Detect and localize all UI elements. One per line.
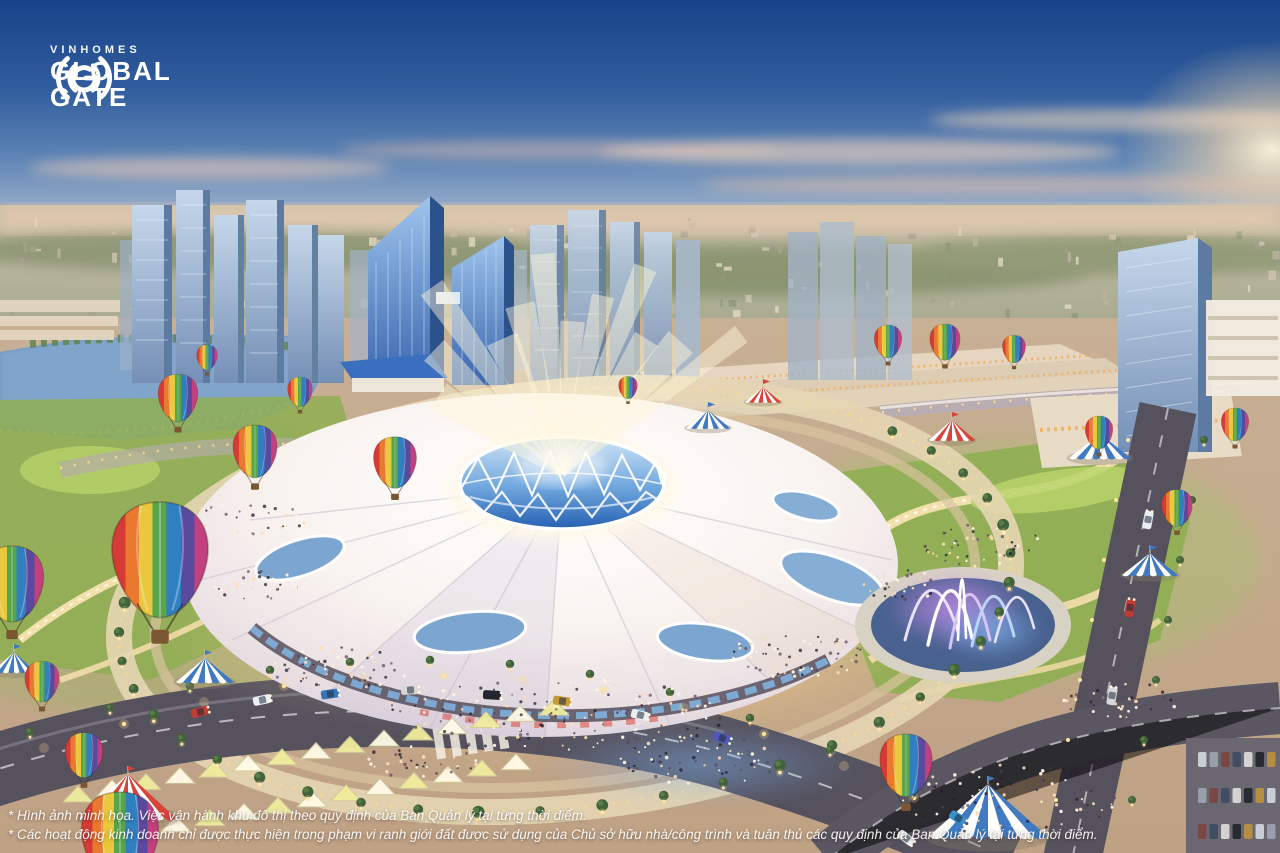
- person: [665, 756, 669, 760]
- person: [1036, 789, 1038, 791]
- tree-highlight: [950, 665, 956, 671]
- far-right-building: [1206, 300, 1280, 396]
- person: [953, 542, 956, 545]
- person: [260, 570, 263, 573]
- person: [400, 756, 403, 759]
- person: [718, 769, 720, 771]
- distant-building: [1068, 252, 1071, 262]
- tree-uplight: [216, 764, 219, 767]
- person: [998, 554, 1001, 557]
- tree-highlight: [828, 741, 833, 746]
- person: [750, 656, 752, 658]
- distant-building: [1076, 257, 1079, 265]
- person: [869, 590, 871, 592]
- person: [1003, 554, 1005, 556]
- parked-car: [1198, 788, 1207, 803]
- person: [835, 642, 838, 645]
- person: [944, 560, 946, 562]
- person: [1079, 788, 1082, 791]
- person: [1036, 537, 1039, 540]
- car: [483, 690, 503, 700]
- distant-building: [973, 238, 978, 246]
- person: [909, 573, 912, 576]
- person: [303, 522, 306, 525]
- person: [542, 740, 545, 743]
- person: [686, 728, 688, 730]
- person: [966, 555, 969, 558]
- person: [929, 592, 932, 595]
- parked-car: [1210, 788, 1219, 803]
- person: [1074, 698, 1077, 701]
- person: [991, 795, 993, 797]
- person: [520, 713, 523, 716]
- tree-highlight: [107, 705, 111, 709]
- person: [1003, 793, 1006, 796]
- person: [1070, 695, 1073, 698]
- person: [744, 780, 746, 782]
- distant-building: [1272, 251, 1279, 260]
- tree-uplight: [269, 674, 272, 677]
- person: [725, 771, 728, 774]
- person: [275, 534, 277, 536]
- person: [441, 749, 443, 751]
- logo-brand-text: VINHOMES: [50, 44, 172, 56]
- tree-highlight: [996, 608, 1000, 612]
- person: [923, 545, 927, 549]
- person: [279, 584, 281, 586]
- person: [753, 760, 756, 763]
- person: [539, 723, 542, 726]
- vinhomes-global-gate-logo: VINHOMES GLOBAL GATE: [50, 44, 172, 110]
- person: [626, 740, 630, 744]
- person: [927, 782, 931, 786]
- person: [410, 745, 412, 747]
- person: [453, 756, 455, 758]
- person: [1150, 708, 1152, 710]
- person: [627, 767, 630, 770]
- tree-highlight: [214, 756, 218, 760]
- person: [829, 651, 833, 655]
- person: [476, 699, 479, 702]
- person: [999, 764, 1002, 767]
- distant-building: [746, 295, 752, 303]
- person: [972, 530, 975, 533]
- person: [416, 764, 419, 767]
- distant-building: [369, 237, 377, 245]
- tree-highlight: [1177, 557, 1181, 561]
- person: [1090, 790, 1092, 792]
- person: [1093, 692, 1096, 695]
- person: [768, 770, 771, 773]
- person: [795, 655, 797, 657]
- tree-uplight: [429, 664, 432, 667]
- person: [565, 712, 567, 714]
- tree-highlight: [984, 494, 989, 499]
- person: [815, 649, 818, 652]
- person: [793, 675, 796, 678]
- person: [929, 579, 933, 583]
- person: [824, 656, 826, 658]
- parked-car: [1256, 788, 1265, 803]
- person: [205, 509, 207, 511]
- distant-building: [733, 310, 741, 317]
- person: [667, 773, 669, 775]
- person: [294, 585, 297, 588]
- person: [893, 592, 896, 595]
- person: [625, 712, 628, 715]
- distant-building: [57, 249, 61, 259]
- person: [647, 702, 650, 705]
- person: [422, 756, 425, 759]
- person: [1102, 697, 1105, 700]
- person: [663, 685, 667, 689]
- person: [1051, 782, 1054, 785]
- tree-uplight: [919, 701, 922, 704]
- person: [729, 750, 731, 752]
- person: [511, 677, 513, 679]
- person: [972, 527, 975, 530]
- aerial-render: [0, 0, 1280, 853]
- person: [450, 771, 453, 774]
- parked-car: [1210, 752, 1219, 767]
- person: [326, 673, 328, 675]
- person: [616, 711, 618, 713]
- person: [447, 747, 449, 749]
- person: [902, 799, 904, 801]
- person: [884, 584, 886, 586]
- person: [351, 648, 354, 651]
- person: [493, 689, 495, 691]
- person: [697, 750, 699, 752]
- person: [657, 760, 661, 764]
- person: [785, 635, 787, 637]
- tree-highlight: [150, 711, 155, 716]
- person: [1097, 711, 1099, 713]
- person: [205, 524, 207, 526]
- person: [704, 704, 707, 707]
- parked-car: [1221, 752, 1230, 767]
- person: [258, 575, 261, 578]
- person: [584, 717, 586, 719]
- person: [1034, 535, 1036, 537]
- person: [815, 669, 818, 672]
- person: [210, 506, 212, 508]
- person: [755, 651, 757, 653]
- person: [973, 537, 975, 539]
- person: [732, 657, 734, 659]
- person: [422, 775, 425, 778]
- distant-building: [20, 258, 24, 264]
- person: [1070, 708, 1072, 710]
- person: [988, 798, 990, 800]
- render-canvas: VINHOMES GLOBAL GATE * Hình ảnh minh họa…: [0, 0, 1280, 853]
- person: [364, 679, 366, 681]
- person: [443, 769, 445, 771]
- person: [671, 687, 674, 690]
- distant-building: [720, 299, 722, 307]
- parked-car: [1244, 752, 1253, 767]
- person: [320, 648, 322, 650]
- person: [679, 762, 681, 764]
- person: [608, 679, 610, 681]
- person: [1099, 680, 1102, 683]
- distant-building: [1248, 285, 1250, 292]
- person: [302, 678, 304, 680]
- person: [990, 537, 993, 540]
- person: [942, 543, 945, 546]
- distant-building: [24, 243, 28, 253]
- person: [243, 597, 245, 599]
- street-light: [1102, 558, 1106, 562]
- person: [469, 712, 472, 715]
- person: [250, 534, 253, 537]
- person: [443, 730, 446, 733]
- person: [1075, 798, 1078, 801]
- tree-uplight: [589, 678, 592, 681]
- tree-uplight: [722, 786, 725, 789]
- person: [479, 686, 482, 689]
- person: [1126, 716, 1128, 718]
- person: [768, 643, 771, 646]
- tree-uplight: [1007, 587, 1011, 591]
- person: [274, 507, 277, 510]
- person: [906, 574, 909, 577]
- person: [817, 636, 819, 638]
- person: [747, 750, 749, 752]
- person: [218, 588, 220, 590]
- tree-uplight: [877, 727, 881, 731]
- person: [235, 586, 238, 589]
- person: [765, 638, 768, 641]
- person: [1140, 706, 1143, 709]
- person: [568, 748, 570, 750]
- person: [1069, 773, 1072, 776]
- person: [653, 739, 655, 741]
- person: [365, 685, 368, 688]
- person: [575, 688, 578, 691]
- person: [280, 526, 283, 529]
- tree-uplight: [669, 696, 672, 699]
- person: [633, 765, 636, 768]
- person: [883, 574, 886, 577]
- person: [788, 655, 791, 658]
- person: [912, 587, 915, 590]
- person: [840, 665, 842, 667]
- person: [442, 708, 444, 710]
- person: [1032, 787, 1036, 791]
- person: [1075, 693, 1078, 696]
- tree-highlight: [1165, 617, 1169, 621]
- person: [1039, 772, 1042, 775]
- person: [290, 682, 292, 684]
- person: [298, 677, 301, 680]
- person: [634, 728, 637, 731]
- person: [1022, 766, 1025, 769]
- person: [1049, 767, 1051, 769]
- person: [778, 652, 781, 655]
- tree-highlight: [27, 729, 31, 733]
- person: [855, 641, 858, 644]
- person: [297, 654, 300, 657]
- tree-highlight: [1153, 677, 1157, 681]
- person: [973, 565, 976, 568]
- person: [304, 661, 307, 664]
- person: [235, 582, 238, 585]
- person: [659, 755, 661, 757]
- person: [493, 712, 496, 715]
- person: [466, 726, 469, 729]
- person: [674, 775, 677, 778]
- person: [1059, 784, 1062, 787]
- person: [590, 714, 592, 716]
- person: [896, 579, 898, 581]
- person: [372, 669, 375, 672]
- person: [394, 676, 396, 678]
- person: [221, 504, 223, 506]
- person: [837, 653, 839, 655]
- person: [288, 668, 290, 670]
- person: [242, 576, 245, 579]
- person: [602, 723, 604, 725]
- person: [1089, 700, 1092, 703]
- person: [422, 765, 424, 767]
- distant-building: [778, 244, 783, 253]
- person: [1064, 779, 1066, 781]
- person: [744, 647, 747, 650]
- person: [424, 722, 427, 725]
- person: [988, 784, 991, 787]
- person: [603, 679, 606, 682]
- person: [555, 715, 557, 717]
- person: [604, 694, 606, 696]
- person: [683, 737, 686, 740]
- person: [452, 693, 455, 696]
- tree-highlight: [1005, 578, 1010, 583]
- person: [399, 710, 401, 712]
- distant-building: [908, 234, 916, 240]
- tree-highlight: [889, 427, 894, 432]
- person: [777, 648, 779, 650]
- person: [461, 708, 463, 710]
- person: [291, 508, 294, 511]
- distant-building: [1059, 272, 1061, 277]
- person: [668, 767, 671, 770]
- person: [950, 529, 952, 531]
- person: [374, 661, 377, 664]
- distant-building: [452, 248, 457, 256]
- person: [596, 688, 599, 691]
- distant-building: [1065, 305, 1072, 309]
- person: [399, 760, 402, 763]
- tree-highlight: [1129, 797, 1133, 801]
- person: [956, 556, 959, 559]
- person: [323, 660, 326, 663]
- person: [751, 752, 754, 755]
- person: [424, 698, 427, 701]
- tree-uplight: [1131, 804, 1134, 807]
- person: [692, 738, 694, 740]
- tree-highlight: [1201, 437, 1205, 441]
- distant-building: [1103, 292, 1106, 299]
- person: [637, 738, 639, 740]
- person: [358, 679, 361, 682]
- person: [496, 682, 499, 685]
- person: [423, 711, 426, 714]
- person: [621, 736, 624, 739]
- person: [765, 653, 767, 655]
- tree-uplight: [979, 646, 982, 649]
- person: [679, 768, 682, 771]
- person: [734, 765, 736, 767]
- person: [240, 589, 242, 591]
- tree-highlight: [1141, 737, 1145, 741]
- person: [283, 663, 286, 666]
- disclaimer-line-2: * Các hoạt động kinh doanh chỉ được thực…: [8, 826, 1272, 845]
- distant-building: [775, 306, 779, 313]
- person: [971, 795, 973, 797]
- person: [836, 658, 838, 660]
- person: [781, 658, 783, 660]
- tree-highlight: [977, 637, 982, 642]
- person: [336, 655, 339, 658]
- person: [679, 736, 682, 739]
- person: [285, 513, 288, 516]
- person: [836, 671, 839, 674]
- disclaimer: * Hình ảnh minh họa. Việc vận hành khu đ…: [8, 807, 1272, 845]
- person: [957, 544, 959, 546]
- person: [378, 683, 382, 687]
- person: [634, 747, 636, 749]
- person: [369, 677, 372, 680]
- person: [303, 672, 306, 675]
- parked-car: [1256, 752, 1265, 767]
- person: [493, 727, 495, 729]
- person: [550, 705, 552, 707]
- person: [597, 742, 599, 744]
- person: [908, 586, 910, 588]
- person: [936, 555, 938, 557]
- person: [1010, 783, 1012, 785]
- person: [714, 763, 717, 766]
- person: [1028, 549, 1030, 551]
- person: [573, 732, 575, 734]
- person: [802, 634, 804, 636]
- person: [681, 711, 684, 714]
- person: [465, 752, 468, 755]
- tree-uplight: [952, 675, 956, 679]
- person: [907, 569, 909, 571]
- person: [687, 782, 690, 785]
- person: [750, 763, 753, 766]
- person: [426, 766, 428, 768]
- tree-uplight: [189, 690, 192, 693]
- tree-highlight: [120, 598, 126, 604]
- person: [680, 740, 682, 742]
- person: [627, 763, 630, 766]
- person: [467, 743, 471, 747]
- street-light-halo: [839, 761, 849, 771]
- tree-uplight: [962, 477, 965, 480]
- person: [635, 698, 637, 700]
- person: [617, 684, 619, 686]
- person: [931, 775, 934, 778]
- person: [324, 664, 326, 666]
- person: [368, 683, 371, 686]
- person: [800, 667, 802, 669]
- parked-car: [1244, 788, 1253, 803]
- person: [1017, 782, 1019, 784]
- distant-building: [724, 267, 732, 271]
